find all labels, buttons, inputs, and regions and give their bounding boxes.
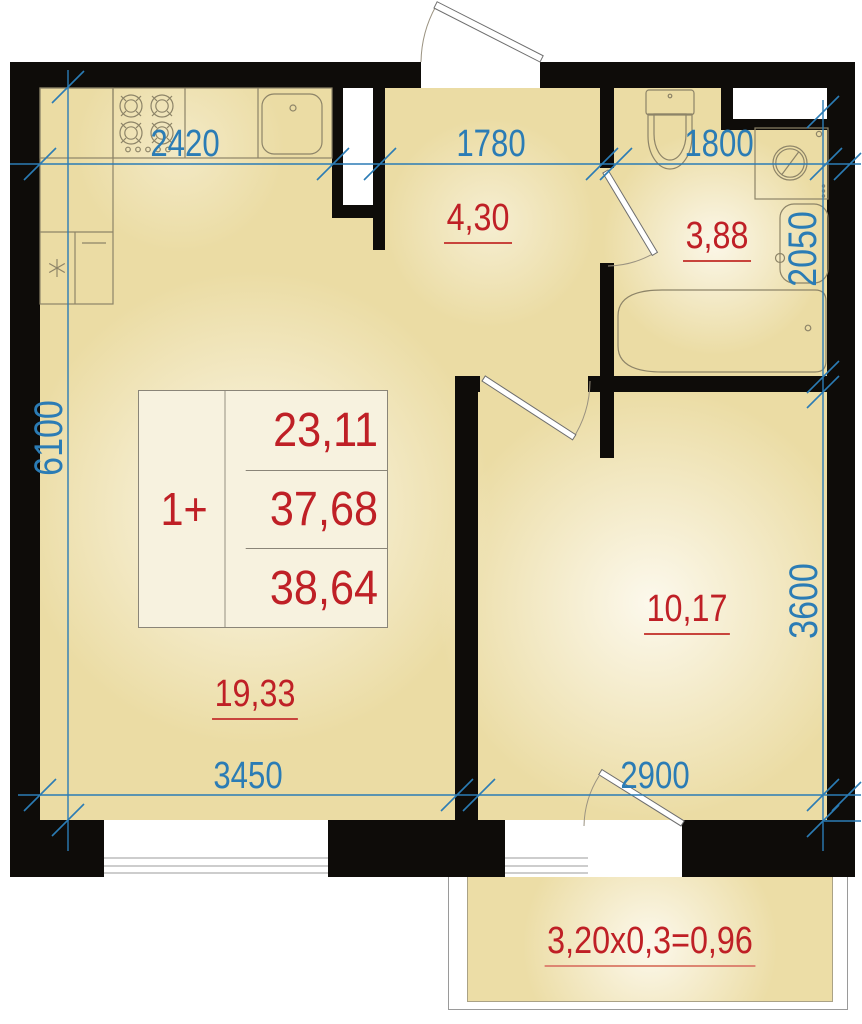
area-label-bedroom: 10,17 xyxy=(644,590,730,628)
entry-door-arc xyxy=(421,6,436,62)
partition-hall-bath-upper xyxy=(600,88,614,168)
bathtub-icon xyxy=(618,290,826,372)
dim-living-width: 3450 xyxy=(213,757,282,795)
wall-top-right xyxy=(540,62,855,88)
vent-niche xyxy=(733,88,827,119)
bathroom-door-leaf xyxy=(603,170,658,255)
kitchen-fixtures xyxy=(40,88,332,304)
kitchen-shaft-left xyxy=(332,88,343,218)
kitchen-shaft-bottom xyxy=(332,205,385,218)
partition-hall-bath-lower xyxy=(600,263,614,458)
kitchen-sink-icon xyxy=(262,94,322,154)
dim-hall-width: 1780 xyxy=(456,125,525,163)
wall-bottom-middle xyxy=(328,820,505,877)
area-value-bathroom: 3,88 xyxy=(683,215,751,262)
dim-bath-depth: 2050 xyxy=(783,211,823,287)
area-value-bedroom: 10,17 xyxy=(644,588,730,635)
walls xyxy=(10,62,855,877)
entry-door xyxy=(421,2,543,62)
fridge-icon xyxy=(49,259,65,277)
bathroom-door xyxy=(603,170,658,266)
dim-kitchen-width: 2420 xyxy=(150,125,219,163)
dimension-lines xyxy=(10,70,861,851)
dim-apartment-height: 6100 xyxy=(29,400,69,476)
wall-bottom-left xyxy=(10,820,104,877)
area-value-living: 19,33 xyxy=(212,673,298,720)
bedroom-window xyxy=(505,820,588,877)
partition-living-bedroom xyxy=(455,376,478,820)
wall-bath-bottom xyxy=(600,376,827,392)
bedroom-door-leaf xyxy=(482,376,576,440)
living-window xyxy=(104,820,328,877)
floor-plan: 1+ 23,11 37,68 38,64 xyxy=(0,0,862,1024)
area-label-bathroom: 3,88 xyxy=(683,217,751,255)
entry-door-leaf xyxy=(434,2,543,62)
wall-bottom-right xyxy=(682,820,855,877)
dim-bath-width: 1800 xyxy=(684,125,753,163)
area-label-hall: 4,30 xyxy=(444,199,512,237)
balcony-door-opening xyxy=(588,820,682,877)
wall-right xyxy=(827,62,855,877)
area-label-living: 19,33 xyxy=(212,675,298,713)
bathroom-door-arc xyxy=(608,252,656,266)
balcony-door-arc xyxy=(584,776,599,826)
balcony-formula-value: 3,20x0,3=0,96 xyxy=(545,920,756,967)
dim-bedroom-height: 3600 xyxy=(784,563,824,639)
bedroom-door xyxy=(482,376,590,440)
dim-bedroom-width: 2900 xyxy=(620,757,689,795)
bedroom-door-arc xyxy=(572,381,590,440)
area-value-hall: 4,30 xyxy=(444,197,512,244)
kitchen-shaft-niche xyxy=(343,88,373,205)
balcony-area-formula: 3,20x0,3=0,96 xyxy=(545,922,756,960)
